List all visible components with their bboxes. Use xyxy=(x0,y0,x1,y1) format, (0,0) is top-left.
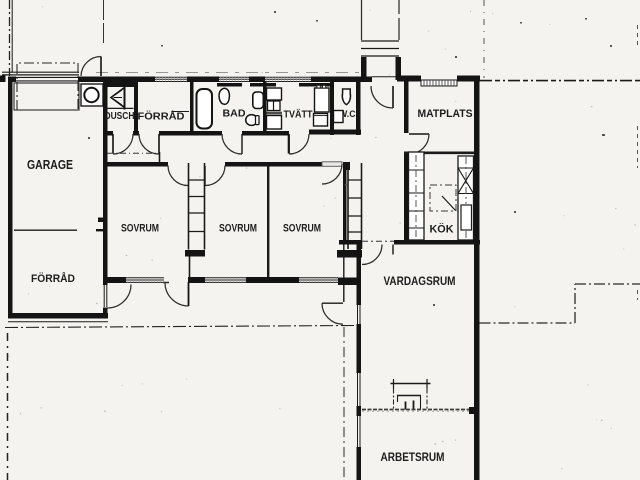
svg-text:BAD: BAD xyxy=(223,108,246,120)
svg-text:DUSCH: DUSCH xyxy=(105,111,135,122)
svg-text:GARAGE: GARAGE xyxy=(27,158,73,172)
svg-text:SOVRUM: SOVRUM xyxy=(283,223,321,235)
svg-text:ARBETSRUM: ARBETSRUM xyxy=(381,450,445,464)
svg-text:FÖRRÅD: FÖRRÅD xyxy=(31,272,75,285)
svg-text:KÖK: KÖK xyxy=(430,223,454,236)
svg-text:TVÄTT: TVÄTT xyxy=(284,108,314,121)
svg-text:VARDAGSRUM: VARDAGSRUM xyxy=(384,276,456,288)
svg-text:SOVRUM: SOVRUM xyxy=(219,223,257,235)
svg-text:MATPLATS: MATPLATS xyxy=(418,108,473,120)
svg-text:SOVRUM: SOVRUM xyxy=(121,223,159,235)
